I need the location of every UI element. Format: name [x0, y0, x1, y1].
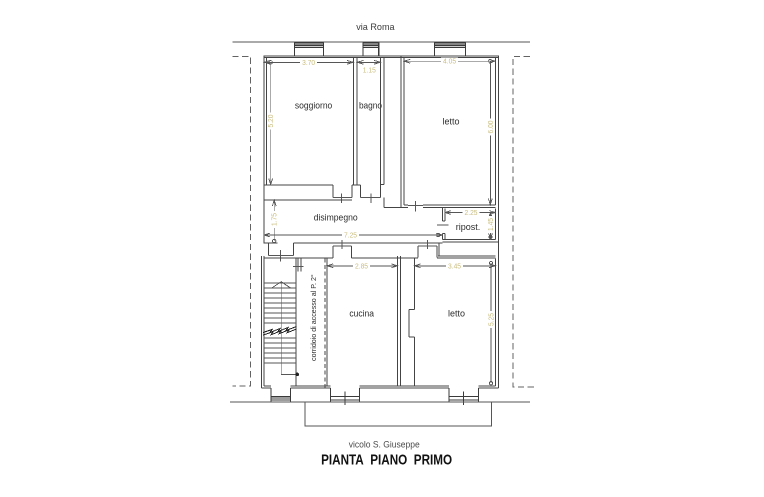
svg-text:5.25: 5.25 [487, 313, 496, 326]
svg-text:disimpegno: disimpegno [314, 213, 358, 223]
svg-text:ripost.: ripost. [456, 222, 481, 232]
svg-text:4.05: 4.05 [443, 57, 456, 66]
svg-text:2.25: 2.25 [465, 208, 478, 217]
svg-text:soggiorno: soggiorno [295, 101, 332, 111]
svg-text:cucina: cucina [349, 308, 374, 318]
svg-text:3.70: 3.70 [302, 58, 315, 67]
svg-text:PIANTA PIANO PRIMO: PIANTA PIANO PRIMO [321, 451, 452, 468]
svg-text:letto: letto [443, 117, 460, 127]
svg-text:2.85: 2.85 [355, 261, 368, 270]
svg-text:7.25: 7.25 [344, 231, 357, 240]
svg-text:1.15: 1.15 [363, 65, 376, 74]
svg-text:6.00: 6.00 [486, 121, 495, 134]
svg-text:via Roma: via Roma [356, 22, 395, 33]
svg-text:1.75: 1.75 [270, 213, 279, 226]
svg-text:5.20: 5.20 [266, 115, 275, 128]
svg-text:3.45: 3.45 [448, 261, 461, 270]
svg-text:bagno: bagno [359, 101, 382, 111]
svg-text:vicolo S. Giuseppe: vicolo S. Giuseppe [349, 439, 420, 449]
svg-text:corridoio di accesso al P. 2°: corridoio di accesso al P. 2° [309, 274, 318, 361]
svg-text:1.45: 1.45 [486, 218, 495, 231]
svg-text:letto: letto [448, 308, 465, 318]
